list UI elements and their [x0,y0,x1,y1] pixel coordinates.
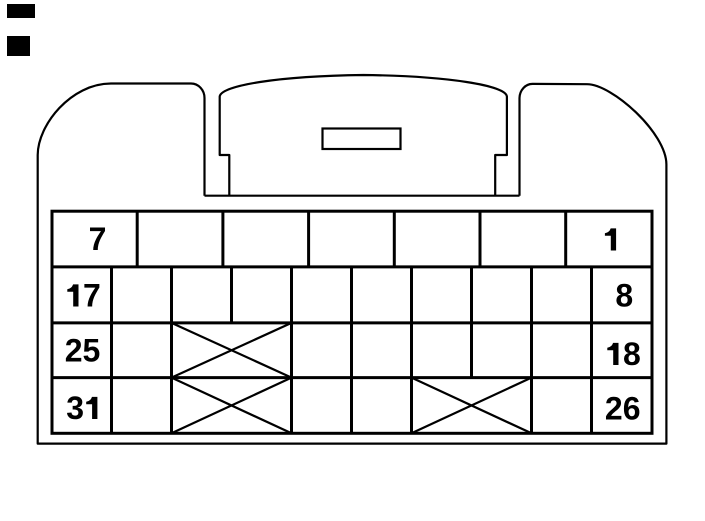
svg-text:3: 3 [66,390,84,426]
svg-text:25: 25 [65,333,101,369]
svg-text:8: 8 [623,336,641,372]
svg-text:7: 7 [83,278,101,314]
svg-text:7: 7 [89,221,107,257]
svg-text:26: 26 [605,391,641,427]
svg-text:8: 8 [615,278,633,314]
